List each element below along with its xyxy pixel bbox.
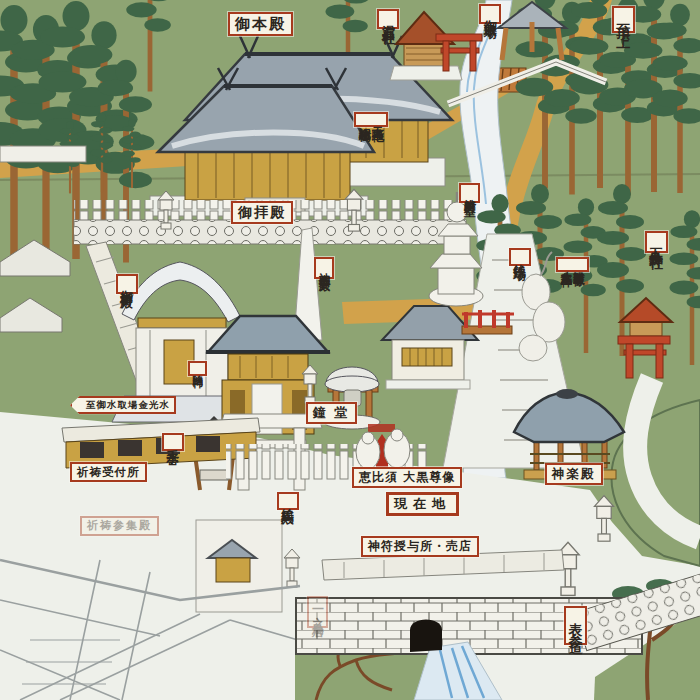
label-emaden: 絵馬殿 (277, 492, 299, 510)
label-zeniaraiba: 銭洗場 (509, 248, 531, 266)
label-chozusha: 手水舎 (162, 433, 184, 451)
figure-silhouette (410, 620, 442, 653)
label-talisman-shop: 神符授与所・売店 (361, 536, 479, 557)
label-kito-reception: 祈祷受付所 (70, 462, 147, 482)
label-kitoden: 御祈祷殿 (116, 274, 138, 294)
label-honden: 御本殿 (228, 12, 293, 36)
label-to-summit: 至頂上 (612, 6, 635, 33)
label-isuzu-shrine: 五十鈴神社 (645, 231, 668, 253)
label-omotesando: 表参道 (564, 606, 587, 645)
shrine-map-painting: 御本殿 滑石神社 御水取場 至頂上 天皇陛下他 記念植樹 辨財天堂 銭洗場 辨財… (0, 0, 700, 700)
label-current-location: 現在地 (386, 492, 459, 516)
label-haiden: 御拝殿 (231, 201, 293, 224)
label-ebisu-daikoku: 恵比須 大黒尊像 (352, 467, 462, 488)
label-mizutoriba-sign: 至御水取場金光水 (70, 396, 176, 414)
label-mikoshi-hoanden: 神輿奉安殿 (314, 257, 334, 279)
label-benzaiten-statue: 辨財天尊像 八大龍王神 (556, 257, 589, 272)
label-omizutoriba: 御水取場 (479, 4, 501, 24)
label-kito-sanshuden: 祈祷参集殿 (80, 516, 159, 536)
label-shodo: 鐘 堂 (306, 402, 357, 424)
label-memorial-tree: 天皇陛下他 記念植樹 (354, 112, 388, 127)
label-nameraishi-shrine: 滑石神社 (377, 9, 399, 29)
painted-scene (0, 0, 700, 700)
label-benzaitendo: 辨財天堂 (459, 183, 480, 203)
label-kaguraden: 神楽殿 (545, 463, 603, 485)
label-zuishinmon: 隨神門 (188, 361, 207, 376)
label-ichino-torii: 一之鳥居 (307, 596, 328, 628)
emaden-building (196, 520, 282, 612)
